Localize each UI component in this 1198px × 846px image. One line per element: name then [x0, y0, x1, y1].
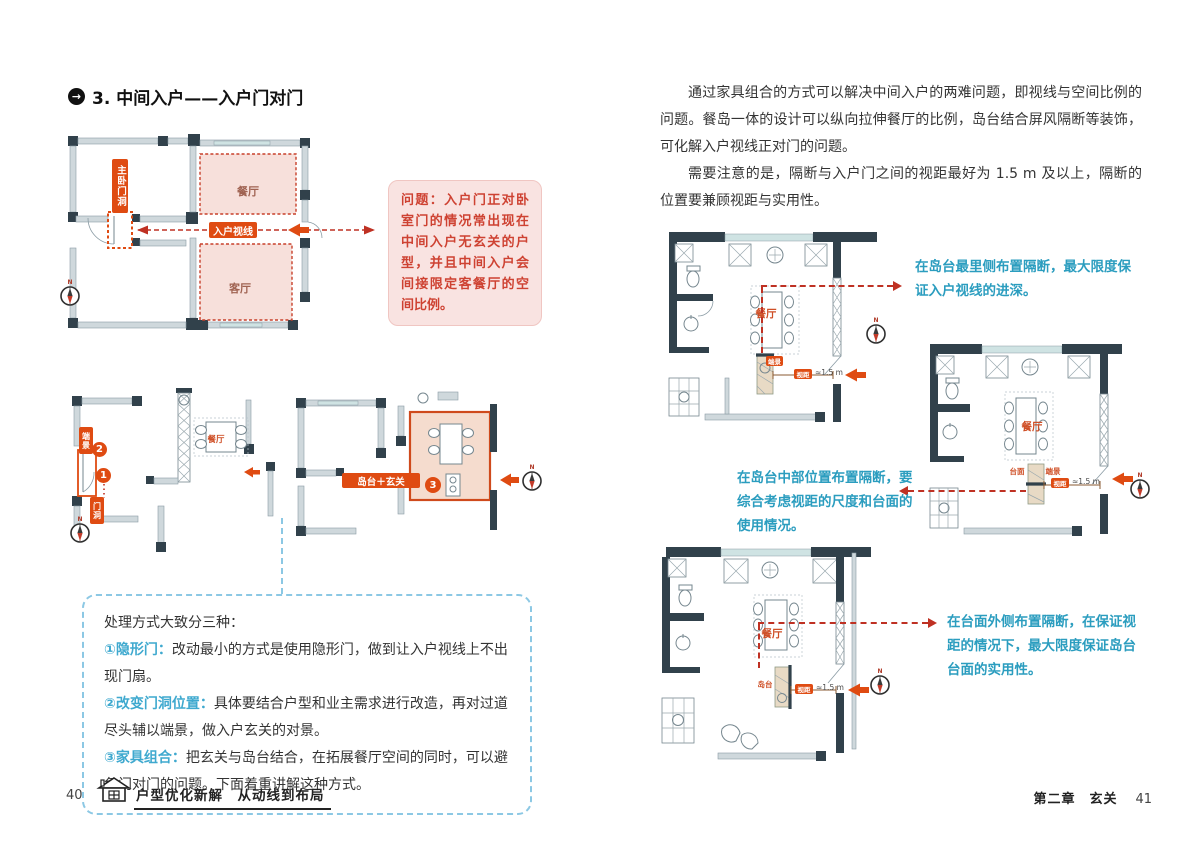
paragraph: 通过家具组合的方式可以解决中间入户的两难问题，即视线与空间比例的问题。餐岛一体的… [660, 80, 1142, 161]
floorplan-door-methods: N [58, 386, 286, 552]
dining-label: 餐厅 [752, 306, 780, 321]
sink [943, 423, 957, 439]
entry-arrow-icon [845, 369, 866, 382]
svg-text:N: N [877, 668, 882, 675]
entry-arrow-icon [244, 467, 260, 478]
svg-text:N: N [67, 279, 72, 286]
leader-line [908, 490, 1026, 492]
living-room-label: 客厅 [218, 280, 262, 296]
annotation-middle: 在岛台中部位置布置隔断，要综合考虑视距的尺度和台面的使用情况。 [737, 466, 919, 538]
svg-text:N: N [1137, 472, 1142, 479]
method-2-label: ②改变门洞位置： [104, 696, 214, 712]
end-view-tag: 端景 [766, 356, 783, 366]
leader-line [758, 624, 760, 668]
end-view-badge: 端景 [79, 427, 93, 454]
method-item: ②改变门洞位置：具体要结合户型和业主需求进行改造，再对过道尽头辅以端景，做入户玄… [104, 691, 510, 745]
annotation-outer: 在台面外侧布置隔断，在保证视距的情况下，最大限度保证岛台台面的实用性。 [947, 610, 1137, 682]
method-3-label: ③家具组合： [104, 750, 186, 766]
dining-label: 餐厅 [200, 433, 232, 445]
entry-arrow-icon [848, 684, 869, 697]
sight-distance-tag: 视距 [795, 684, 813, 694]
dining-room-label: 餐厅 [226, 183, 270, 199]
problem-callout: 问题：入户门正对卧室门的情况常出现在中间入户无玄关的户型，并且中间入户会间接限定… [388, 180, 542, 326]
kitchen-island [775, 665, 791, 709]
floorplan-entry-sightline: N [58, 126, 378, 361]
svg-text:N: N [529, 464, 534, 471]
toilet [946, 378, 959, 399]
distance-value: ≈1.5 m [816, 683, 844, 692]
kitchen-island [446, 474, 460, 496]
sight-distance-tag: 视距 [1051, 478, 1069, 488]
leader-line [758, 622, 928, 624]
dining-label: 餐厅 [758, 626, 786, 641]
page-number-left: 40 [66, 788, 83, 803]
connector-line [281, 518, 283, 594]
methods-intro: 处理方式大致分三种： [104, 610, 510, 637]
method-1-marker: 1 [96, 468, 111, 483]
door-opening-badge: 门洞 [90, 497, 104, 524]
toilet [687, 266, 700, 287]
entry-arrow-icon [500, 474, 519, 487]
compass-icon: N [61, 279, 79, 305]
dining-label: 餐厅 [1018, 419, 1046, 434]
bedroom-door-frame [108, 212, 132, 248]
book-spread: → 3. 中间入户——入户门对门 [0, 0, 1198, 846]
house-logo-icon [96, 776, 132, 804]
arrow-circle-icon: → [68, 88, 85, 105]
counter-label: 台面 [1006, 466, 1028, 477]
floorplan-screen-middle: N [928, 338, 1166, 540]
entry-arrow-icon [288, 224, 309, 237]
leader-line [761, 285, 893, 287]
distance-value: ≈1.5 m [1072, 477, 1100, 486]
methods-box: 处理方式大致分三种： ①隐形门：改动最小的方式是使用隐形门，做到让入户视线上不出… [82, 594, 532, 815]
section-heading: → 3. 中间入户——入户门对门 [68, 84, 303, 109]
end-view-label: 端景 [1042, 466, 1064, 477]
floorplan-screen-outer: N [658, 543, 910, 775]
chapter-title: 第二章 玄关 [1033, 788, 1117, 807]
method-1-label: ①隐形门： [104, 642, 172, 658]
book-title: 户型优化新解 从动线到布局 [134, 784, 331, 810]
floorplan-screen-inner: N [665, 228, 910, 426]
method-3-marker: 3 [425, 477, 441, 493]
island-entry-badge: 岛台＋玄关 [342, 473, 420, 488]
sight-distance-tag: 视距 [794, 369, 812, 379]
distance-value: ≈1.5 m [815, 368, 843, 377]
leader-line [761, 287, 763, 353]
svg-text:N: N [77, 516, 82, 523]
footer-right: 第二章 玄关 41 [1028, 788, 1152, 807]
page-number-right: 41 [1135, 792, 1152, 807]
annotation-inner: 在岛台最里侧布置隔断，最大限度保证入户视线的进深。 [915, 255, 1143, 303]
armchairs [722, 725, 758, 749]
sink [684, 315, 698, 331]
leader-arrow-icon [893, 281, 902, 291]
section-heading-text: 3. 中间入户——入户门对门 [92, 84, 303, 109]
floorplan-island-entry: N [288, 386, 543, 544]
compass-icon: N [71, 516, 89, 542]
compass-icon: N [523, 464, 541, 490]
bedroom-door-badge: 主卧门洞 [112, 159, 128, 213]
compass-icon: N [867, 317, 885, 343]
leader-arrow-icon [928, 618, 937, 628]
island-label: 岛台 [754, 679, 776, 690]
method-2-marker: 2 [92, 442, 107, 457]
body-text: 通过家具组合的方式可以解决中间入户的两难问题，即视线与空间比例的问题。餐岛一体的… [660, 80, 1142, 215]
toilet [679, 585, 692, 606]
entry-arrow-icon [1112, 473, 1133, 486]
compass-icon: N [1131, 472, 1149, 498]
svg-text:N: N [873, 317, 878, 324]
sightline-badge: 入户视线 [209, 222, 257, 238]
compass-icon: N [871, 668, 889, 694]
paragraph: 需要注意的是，隔断与入户门之间的视距最好为 1.5 m 及以上，隔断的位置要兼顾… [660, 161, 1142, 215]
method-item: ①隐形门：改动最小的方式是使用隐形门，做到让入户视线上不出现门扇。 [104, 637, 510, 691]
sink [676, 634, 690, 650]
